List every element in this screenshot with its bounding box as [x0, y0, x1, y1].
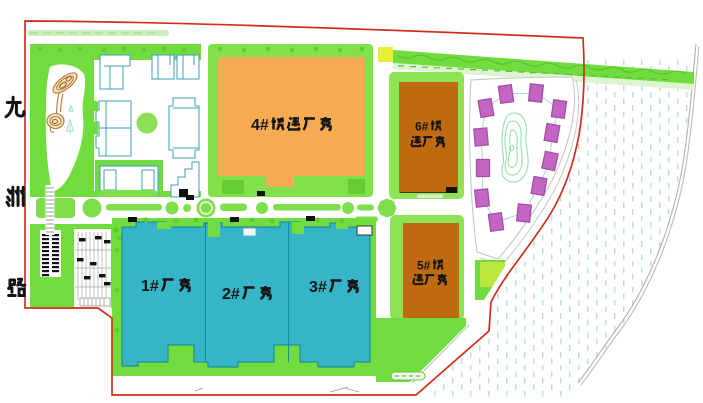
svg-text:4#: 4#: [251, 117, 269, 134]
svg-text:1#: 1#: [141, 278, 159, 295]
svg-text:5#: 5#: [417, 259, 431, 273]
svg-text:6#: 6#: [415, 120, 429, 134]
svg-text:3#: 3#: [309, 279, 327, 296]
svg-text:2#: 2#: [222, 286, 240, 303]
